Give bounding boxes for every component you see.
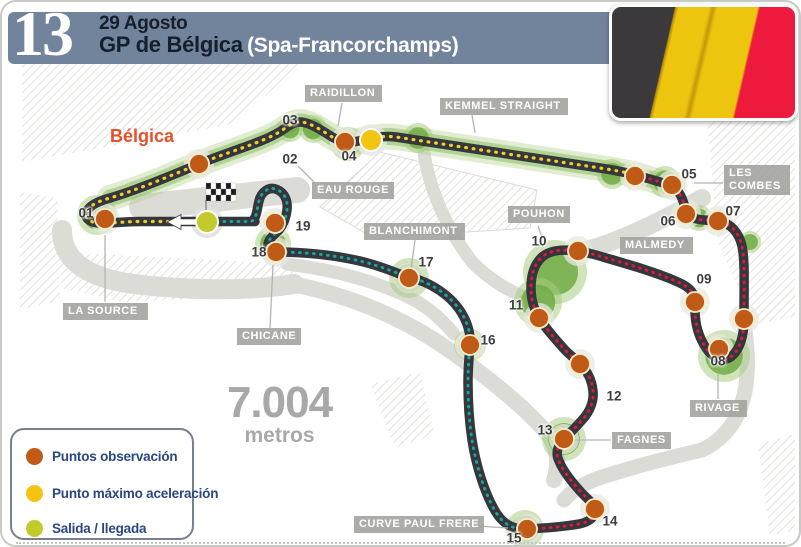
race-subtitle: (Spa-Francorchamps) (247, 34, 458, 57)
point-number-13: 13 (537, 423, 552, 438)
belgium-flag (609, 4, 798, 121)
point-number-06: 06 (660, 214, 675, 229)
point-number-02: 02 (282, 152, 297, 167)
corner-label-malmedy: MALMEDY (620, 237, 693, 254)
corner-label-kemmel-straight: KEMMEL STRAIGHT (440, 98, 568, 115)
legend-item: Punto máximo aceleración (26, 485, 218, 502)
point-number-10: 10 (531, 234, 546, 249)
track-length-value: 7.004 (202, 380, 357, 426)
observation-point (529, 308, 549, 328)
legend-label: Salida / llegada (52, 521, 146, 536)
observation-point (554, 429, 574, 449)
point-number-16: 16 (480, 333, 495, 348)
point-number-12: 12 (606, 389, 621, 404)
point-number-04: 04 (341, 149, 356, 164)
legend-label: Punto máximo aceleración (52, 486, 218, 501)
observation-point (399, 268, 419, 288)
legend-dot-icon (26, 520, 43, 537)
observation-point (676, 204, 696, 224)
race-date: 29 Agosto (99, 13, 458, 34)
point-number-17: 17 (418, 255, 433, 270)
point-number-08: 08 (710, 354, 725, 369)
corner-label-les-combes: LES COMBES (724, 165, 790, 195)
corner-label-raidillon: RAIDILLON (305, 85, 382, 102)
observation-point (568, 241, 588, 261)
legend-dot-icon (26, 448, 43, 465)
observation-point (734, 309, 754, 329)
legend-item: Puntos observación (26, 448, 177, 465)
country-label: Bélgica (110, 126, 174, 147)
point-number-05: 05 (681, 167, 696, 182)
point-number-07: 07 (725, 204, 740, 219)
legend-item: Salida / llegada (26, 520, 146, 537)
infographic-page: 13 29 Agosto GP de Bélgica (Spa-Francorc… (0, 0, 801, 547)
observation-point (95, 209, 115, 229)
race-title: GP de Bélgica (99, 32, 243, 57)
corner-label-fagnes: FAGNES (612, 432, 671, 449)
observation-point (460, 335, 480, 355)
point-number-09: 09 (696, 272, 711, 287)
observation-point (266, 242, 286, 262)
track-length-unit: metros (202, 426, 357, 446)
legend-dot-icon (26, 485, 43, 502)
point-number-18: 18 (251, 245, 266, 260)
track-length: 7.004 metros (202, 380, 357, 446)
start-finish-point (196, 211, 218, 233)
corner-label-pouhon: POUHON (508, 206, 570, 223)
max-acceleration-point (360, 129, 382, 151)
legend-label: Puntos observación (52, 449, 177, 464)
point-number-14: 14 (602, 514, 617, 529)
header-text: 29 Agosto GP de Bélgica (Spa-Francorcham… (99, 13, 458, 58)
corner-label-blanchimont: BLANCHIMONT (364, 223, 465, 240)
observation-point (189, 154, 209, 174)
observation-point (265, 213, 285, 233)
corner-label-chicane: CHICANE (237, 328, 301, 345)
point-number-11: 11 (509, 298, 523, 313)
corner-label-la-source: LA SOURCE (63, 303, 148, 320)
round-number: 13 (12, 2, 72, 66)
point-number-03: 03 (282, 113, 297, 128)
observation-point (685, 292, 705, 312)
observation-point (625, 166, 645, 186)
bottom-dotted-rule (16, 542, 785, 544)
observation-point (662, 175, 682, 195)
point-number-01: 01 (78, 206, 93, 221)
point-number-19: 19 (295, 219, 310, 234)
corner-label-rivage: RIVAGE (690, 400, 747, 417)
observation-point (570, 354, 590, 374)
corner-label-curve-paul-frere: CURVE PAUL FRERE (354, 516, 484, 533)
legend: Puntos observaciónPunto máximo aceleraci… (10, 428, 194, 540)
corner-label-eau-rouge: EAU ROUGE (312, 182, 394, 199)
